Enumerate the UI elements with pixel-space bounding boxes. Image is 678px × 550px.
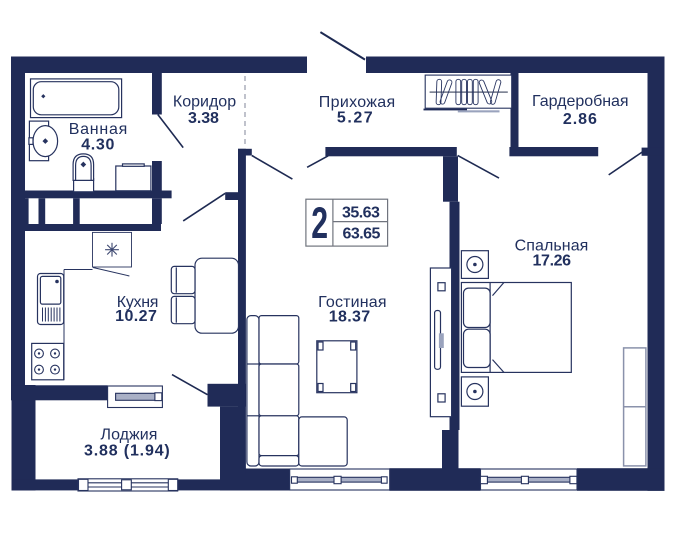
- svg-text:18.37: 18.37: [329, 308, 370, 325]
- svg-text:Лоджия: Лоджия: [101, 427, 158, 444]
- svg-text:Прихожая: Прихожая: [319, 94, 395, 111]
- svg-text:4.30: 4.30: [81, 136, 114, 153]
- svg-text:3.88 (1.94): 3.88 (1.94): [84, 443, 170, 460]
- svg-text:Коридор: Коридор: [173, 93, 236, 110]
- svg-text:5.27: 5.27: [337, 110, 373, 127]
- svg-text:2: 2: [311, 199, 328, 248]
- svg-text:17.26: 17.26: [533, 253, 572, 270]
- svg-text:Гардеробная: Гардеробная: [532, 93, 629, 110]
- svg-text:35.63: 35.63: [342, 204, 380, 221]
- svg-text:2.86: 2.86: [563, 111, 597, 128]
- svg-text:10.27: 10.27: [115, 308, 157, 325]
- svg-text:63.65: 63.65: [343, 226, 381, 243]
- svg-text:3.38: 3.38: [188, 110, 219, 127]
